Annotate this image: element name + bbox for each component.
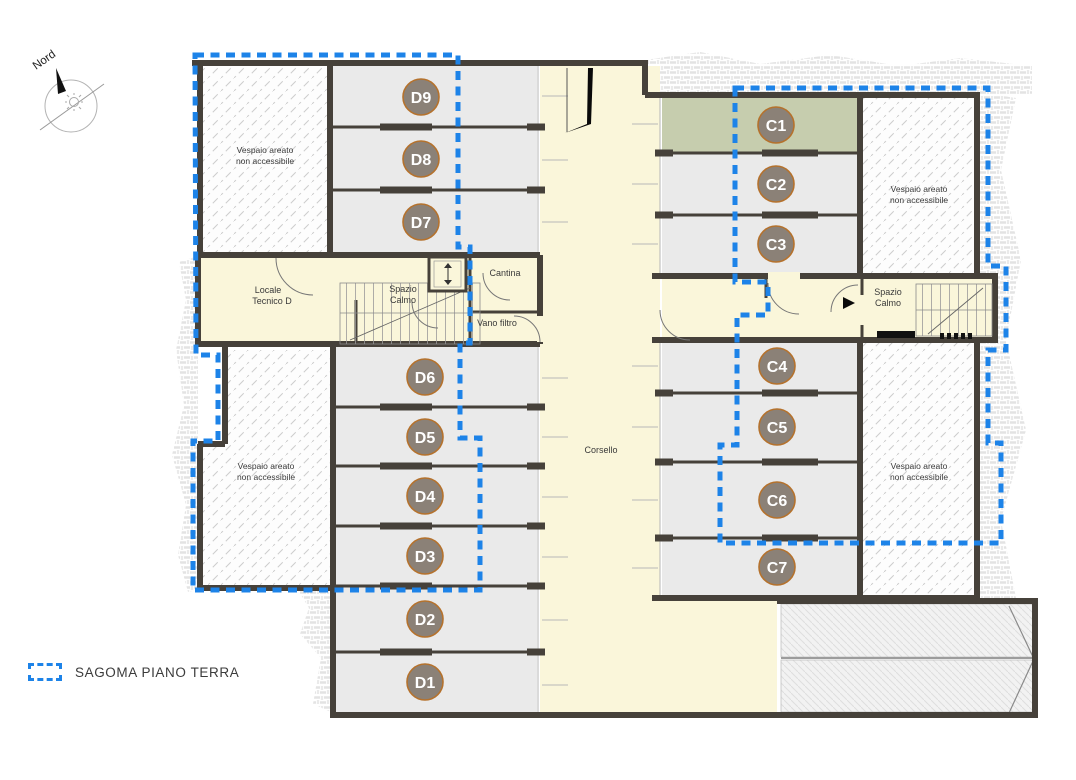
room-label-vespaio-bottom-right: Vespaio areato [891,461,948,471]
room-label-vano-filtro: Vano filtro [477,318,517,328]
svg-text:non accessibile: non accessibile [890,195,948,205]
stall-badge-c1[interactable]: C1 [758,107,794,143]
svg-text:C4: C4 [767,359,788,376]
stall-badge-d9[interactable]: D9 [403,79,439,115]
svg-text:D9: D9 [411,90,432,107]
stall-badge-c4[interactable]: C4 [759,348,795,384]
svg-text:Calmo: Calmo [390,295,416,305]
stall-badge-d1[interactable]: D1 [407,664,443,700]
svg-text:D8: D8 [411,152,432,169]
sagoma-legend-swatch [28,663,62,681]
stall-badge-d6[interactable]: D6 [407,359,443,395]
sun-icon [65,93,83,111]
stall-badge-c3[interactable]: C3 [758,226,794,262]
stall-badge-d4[interactable]: D4 [407,478,443,514]
svg-text:D7: D7 [411,215,432,232]
svg-text:C3: C3 [766,237,787,254]
svg-text:C1: C1 [766,118,787,135]
corsello-floor [540,66,660,712]
svg-text:D5: D5 [415,430,436,447]
floor-plan-page: Vespaio areato non accessibile Vespaio a… [0,0,1076,780]
legend-label: SAGOMA PIANO TERRA [75,665,239,680]
room-label-spazio-calmo-left: Spazio [389,284,417,294]
room-label-corsello: Corsello [584,445,617,455]
stairs-right [916,284,992,336]
svg-text:C6: C6 [767,493,788,510]
svg-text:D3: D3 [415,549,436,566]
stall-badge-d8[interactable]: D8 [403,141,439,177]
north-label: Nord [31,48,58,72]
bottom-right-floor [660,601,777,712]
elevator [429,257,466,291]
svg-text:C7: C7 [767,560,788,577]
svg-text:D6: D6 [415,370,436,387]
svg-text:non accessibile: non accessibile [890,472,948,482]
svg-text:non accessibile: non accessibile [237,472,295,482]
stall-badge-c6[interactable]: C6 [759,482,795,518]
room-label-cantina: Cantina [489,268,520,278]
room-label-spazio-calmo-right: Spazio [874,287,902,297]
threshold-bar [877,331,915,338]
svg-text:C2: C2 [766,177,787,194]
stall-badge-d5[interactable]: D5 [407,419,443,455]
room-label-vespaio-bottom-left: Vespaio areato [238,461,295,471]
room-label-locale-tecnico: Locale [255,285,282,295]
stall-block-d6-d1 [336,347,537,712]
svg-text:D2: D2 [415,612,436,629]
compass: Nord [31,48,104,132]
room-label-vespaio-top-right: Vespaio areato [891,184,948,194]
stall-badge-c7[interactable]: C7 [759,549,795,585]
stall-badge-d3[interactable]: D3 [407,538,443,574]
svg-text:D4: D4 [415,489,436,506]
entry-ramp [781,604,1033,713]
stall-badge-d2[interactable]: D2 [407,601,443,637]
room-label-vespaio-top-left: Vespaio areato [237,145,294,155]
svg-text:D1: D1 [415,675,436,692]
stall-block-c2-c3 [662,153,858,273]
legend: SAGOMA PIANO TERRA [28,663,239,681]
svg-text:Calmo: Calmo [875,298,901,308]
svg-text:C5: C5 [767,420,788,437]
svg-text:non accessibile: non accessibile [236,156,294,166]
stall-badge-c5[interactable]: C5 [759,409,795,445]
stall-badge-d7[interactable]: D7 [403,204,439,240]
svg-text:Tecnico D: Tecnico D [252,296,292,306]
stall-badge-c2[interactable]: C2 [758,166,794,202]
